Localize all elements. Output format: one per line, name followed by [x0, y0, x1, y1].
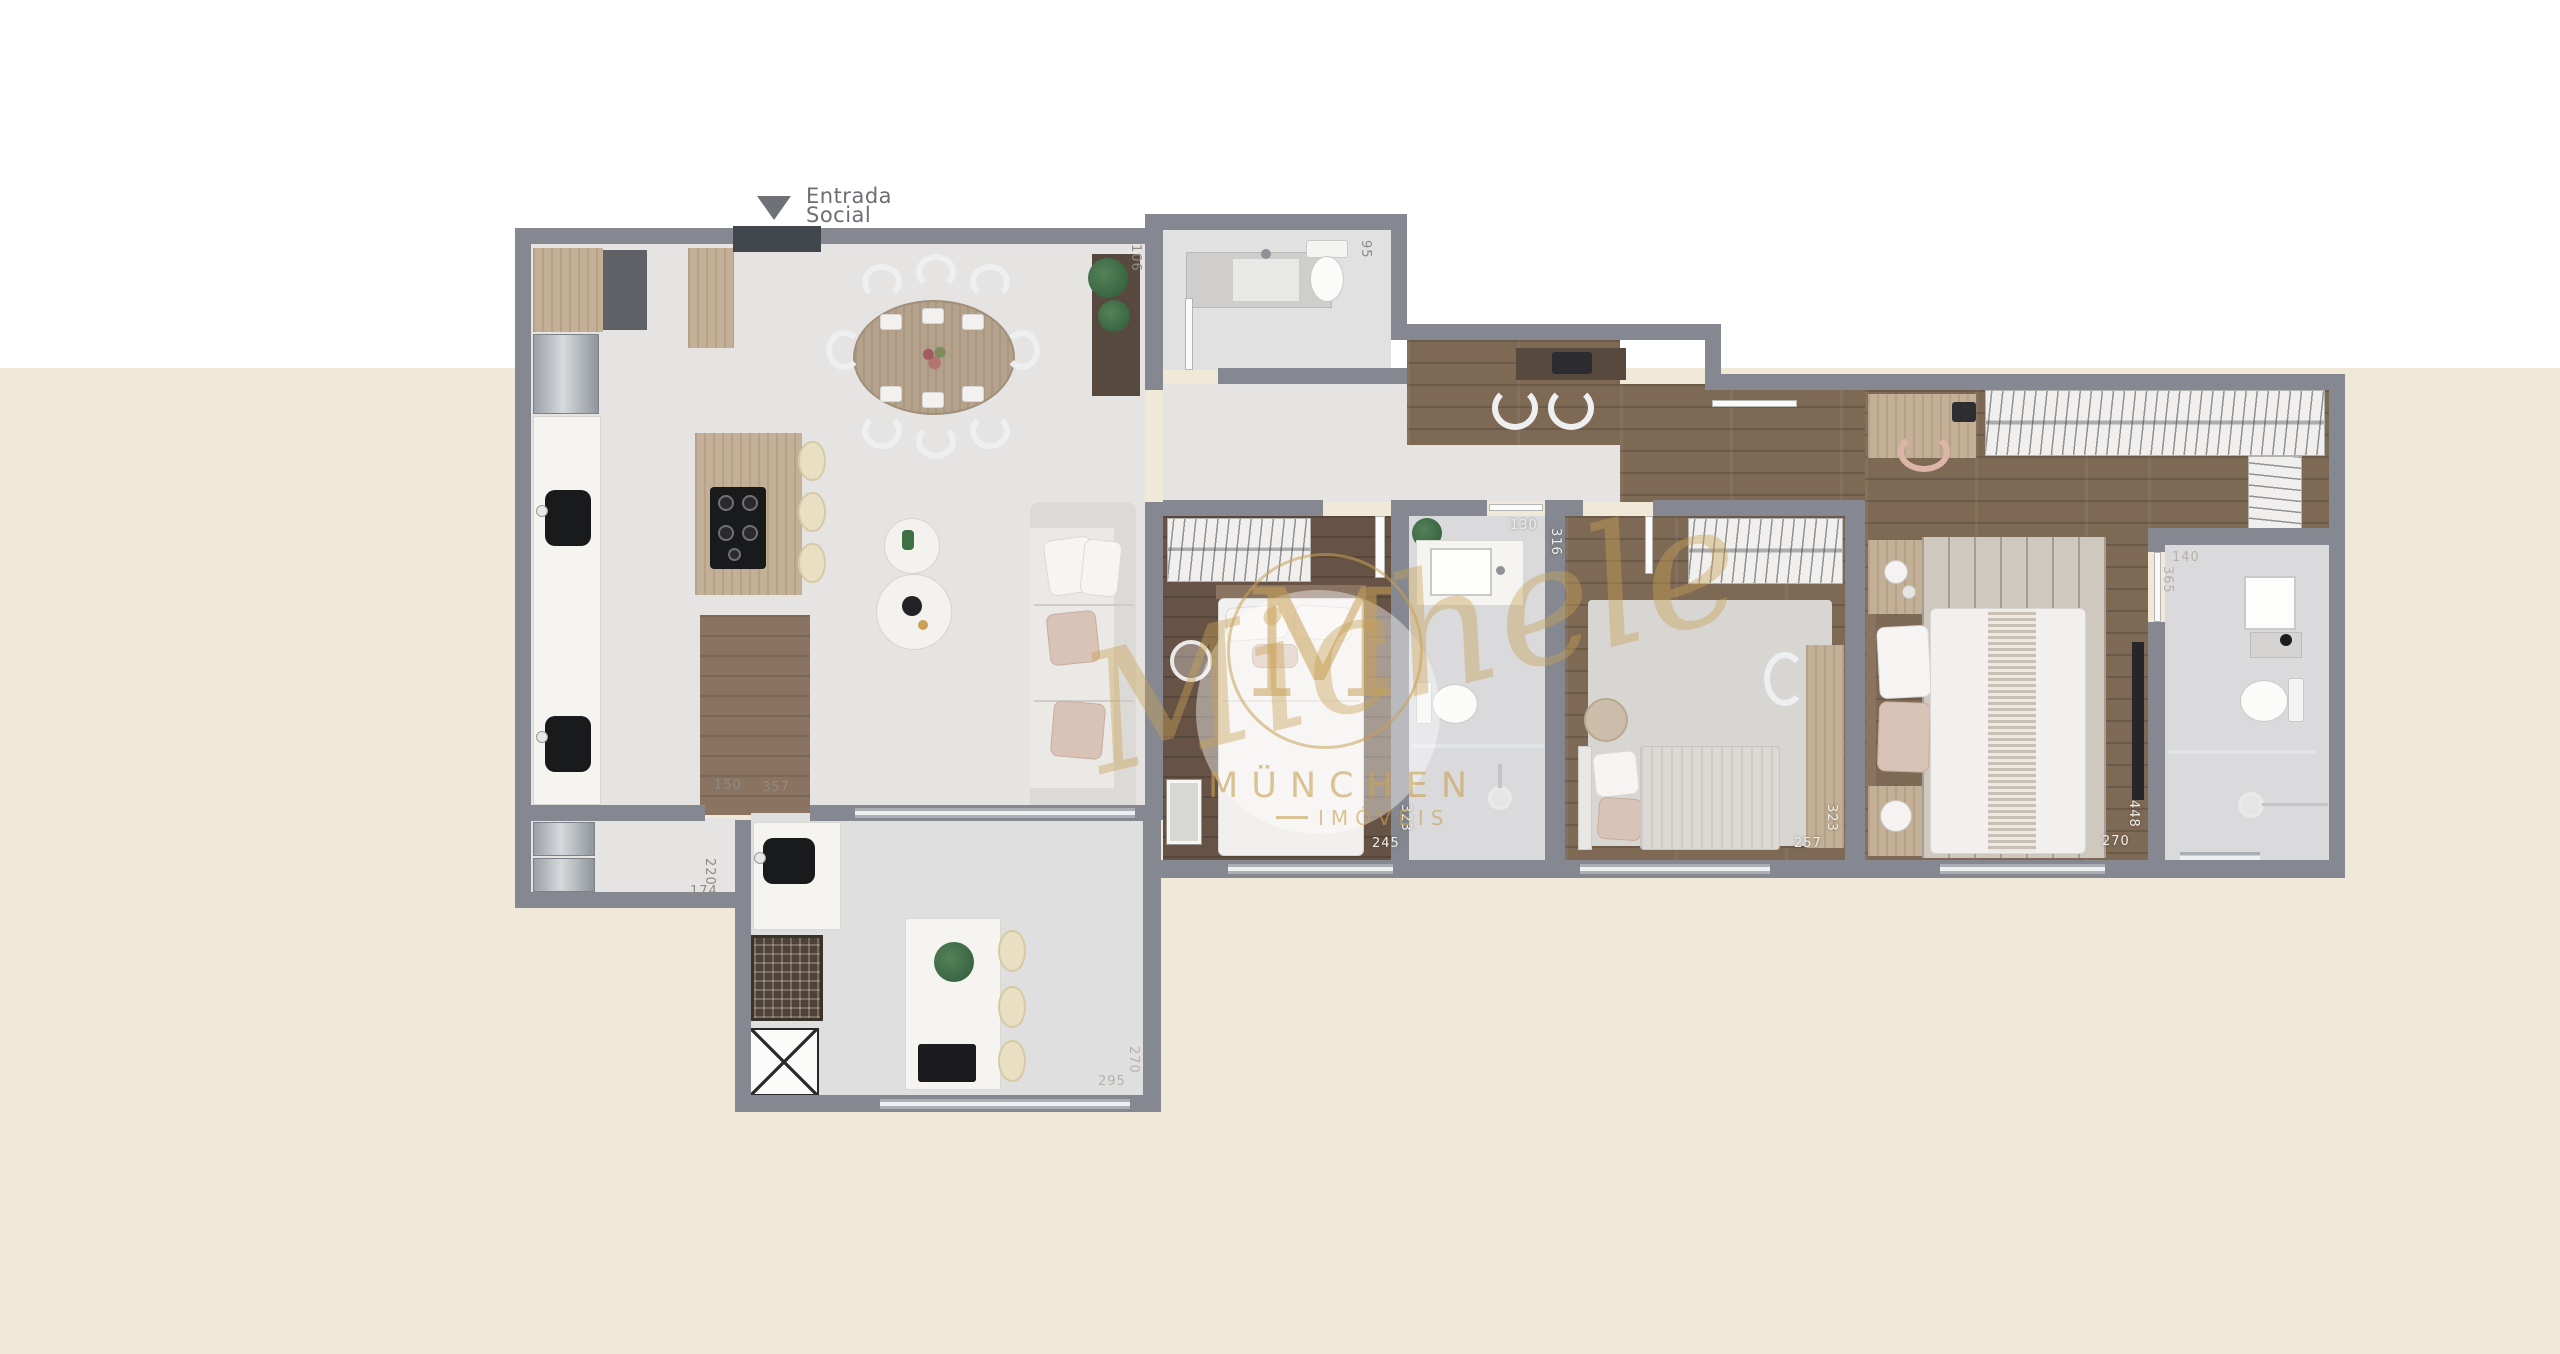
lavabo-toilet-bowl [1310, 256, 1344, 302]
master-bed-throw [1988, 610, 2036, 852]
dim-lavabo-width: 95 [1358, 240, 1373, 259]
barbecue-grill [751, 935, 823, 1021]
dim-masterbath-depth: 365 [2160, 566, 2175, 594]
faucet-icon [536, 505, 548, 517]
dim-hall-width: 150 [714, 778, 742, 793]
kitchen-sink-1 [545, 490, 591, 546]
island-stool [798, 543, 826, 583]
sofa-armrest [1030, 502, 1136, 528]
bedroom1-window [1228, 864, 1393, 874]
wall-masterbath-left-b [2148, 622, 2165, 862]
bed-pillow [1592, 750, 1640, 798]
corridor-sliding-door [1712, 400, 1797, 407]
bed-pillow [1597, 797, 1644, 842]
faucet-icon [1261, 249, 1271, 259]
burner-icon [742, 495, 758, 511]
entrance-arrow-icon [757, 196, 791, 220]
island-stool [798, 441, 826, 481]
plant-icon [1088, 258, 1128, 298]
dim-hall-length: 357 [762, 780, 790, 795]
nightstand-vase [1880, 800, 1912, 832]
burner-icon [718, 525, 734, 541]
kitchen-cabinet [533, 248, 603, 332]
place-setting [922, 308, 944, 324]
decor-bottle [902, 530, 914, 550]
place-setting [922, 392, 944, 408]
wall-bedroom1-top [1163, 500, 1323, 516]
wall-top-nook [1391, 324, 1721, 340]
entrance-door [733, 226, 821, 252]
bed-pillow [1876, 625, 1932, 700]
washer [533, 822, 595, 856]
dim-masterbath-width: 140 [2172, 550, 2200, 565]
shower-glass [2168, 750, 2316, 754]
coffee-decor [918, 620, 928, 630]
dim-bedroom1-width: 245 [1372, 836, 1400, 851]
shower-arm [1498, 764, 1502, 788]
dining-chair [916, 423, 956, 459]
dim-lavabo-side: 106 [1128, 244, 1143, 272]
wall-gourmet-right [1143, 820, 1161, 1112]
vanity-chair [1898, 432, 1950, 472]
entrance-label-line2: Social [806, 205, 871, 225]
wall-gourmet-left [735, 820, 751, 1112]
burner-icon [742, 525, 758, 541]
dim-gourmet-depth: 270 [1126, 1046, 1141, 1074]
monitor-icon [1552, 352, 1592, 374]
shower-head-icon [1488, 786, 1512, 810]
plant-icon [934, 942, 974, 982]
wall-masterbath-left-a [2148, 528, 2165, 552]
bedroom2-pouf [1584, 698, 1628, 742]
duct-shaft [749, 1028, 819, 1096]
burner-icon [718, 495, 734, 511]
dining-chair [1004, 330, 1040, 370]
gourmet-stool [998, 930, 1026, 972]
wall-top-closet [1705, 374, 2345, 390]
bedroom2-bed [1640, 746, 1780, 850]
closet-wardrobe-side [2248, 456, 2302, 536]
dining-chair [970, 413, 1010, 449]
plant-icon [1098, 300, 1130, 332]
place-setting [962, 314, 984, 330]
lavabo-basin [1232, 258, 1300, 302]
dim-bedroom2-depth: 323 [1824, 804, 1839, 832]
masterbath-shelf [2250, 632, 2302, 658]
tv-panel [2132, 642, 2144, 800]
nightstand-decor [1902, 585, 1916, 599]
dining-chair [970, 264, 1010, 300]
dining-chair [862, 264, 902, 300]
burner-icon [728, 548, 741, 561]
nightstand-decor [1884, 560, 1908, 584]
faucet-icon [2280, 634, 2292, 646]
centerpiece-flowers [920, 344, 948, 370]
gourmet-stool [998, 1040, 1026, 1082]
wall-lavabo-bottom [1218, 368, 1407, 384]
office-chair [1548, 386, 1594, 430]
master-headboard [1866, 612, 1876, 787]
wall-right [2329, 374, 2345, 878]
watermark-brand-sub: IMÓVEIS [1318, 806, 1450, 830]
office-chair [1492, 386, 1538, 430]
gourmet-sink [763, 838, 815, 884]
vanity-decor [1952, 402, 1976, 422]
kitchen-sink-2 [545, 716, 591, 772]
dim-gourmet-width: 295 [1098, 1074, 1126, 1089]
masterbath-basin [2244, 576, 2296, 630]
kitchen-tall-cabinet [688, 248, 734, 348]
place-setting [880, 314, 902, 330]
masterbath-toilet-bowl [2240, 680, 2288, 722]
living-window [855, 808, 1135, 818]
wall-top-living [515, 228, 1160, 244]
place-setting [962, 386, 984, 402]
watermark-dash [1276, 816, 1308, 819]
dim-master-width: 270 [2102, 834, 2130, 849]
shower-arm [2262, 803, 2328, 806]
wall-bedroom2-master [1845, 500, 1865, 878]
kitchen-oven-tower [603, 250, 647, 330]
wall-masterbath-top [2148, 528, 2330, 545]
dining-chair [916, 254, 956, 290]
gourmet-tray [918, 1044, 976, 1082]
dryer [533, 858, 595, 892]
gourmet-window [880, 1099, 1130, 1109]
bedroom2-chair [1764, 652, 1806, 706]
wall-bath2-top [1409, 500, 1487, 516]
wall-lavabo-right [1391, 214, 1407, 340]
masterbath-toilet-tank [2288, 678, 2304, 722]
floor-plan-canvas: 106 95 150 357 220 174 295 270 245 323 1… [0, 0, 2560, 1354]
lavabo-door [1185, 298, 1193, 370]
bedroom2-window [1580, 864, 1770, 874]
bed-pillow [1877, 701, 1931, 773]
fridge [533, 334, 599, 414]
wall-living-lavabo [1145, 228, 1163, 390]
wall-top-lavabo [1145, 214, 1407, 230]
island-stool [798, 492, 826, 532]
dining-chair [826, 330, 862, 370]
wall-living-bottom-left [515, 805, 705, 821]
watermark-brand: MÜNCHEN [1208, 766, 1480, 806]
dim-master-depth: 448 [2126, 800, 2141, 828]
master-window [1940, 864, 2105, 874]
faucet-icon [536, 731, 548, 743]
place-setting [880, 386, 902, 402]
shower-head-icon [2238, 792, 2264, 818]
dim-bedroom2-width: 257 [1794, 836, 1822, 851]
gourmet-stool [998, 986, 1026, 1028]
dim-laundry-width: 174 [690, 884, 718, 899]
dim-laundry-depth: 220 [702, 858, 717, 886]
faucet-icon [754, 852, 766, 864]
coffee-decor [902, 596, 922, 616]
bedroom2-headboard [1578, 746, 1592, 850]
sofa-seam [1034, 604, 1134, 606]
sofa-pillow [1079, 538, 1123, 598]
closet-wardrobe-long [1985, 390, 2325, 456]
dining-chair [862, 413, 902, 449]
